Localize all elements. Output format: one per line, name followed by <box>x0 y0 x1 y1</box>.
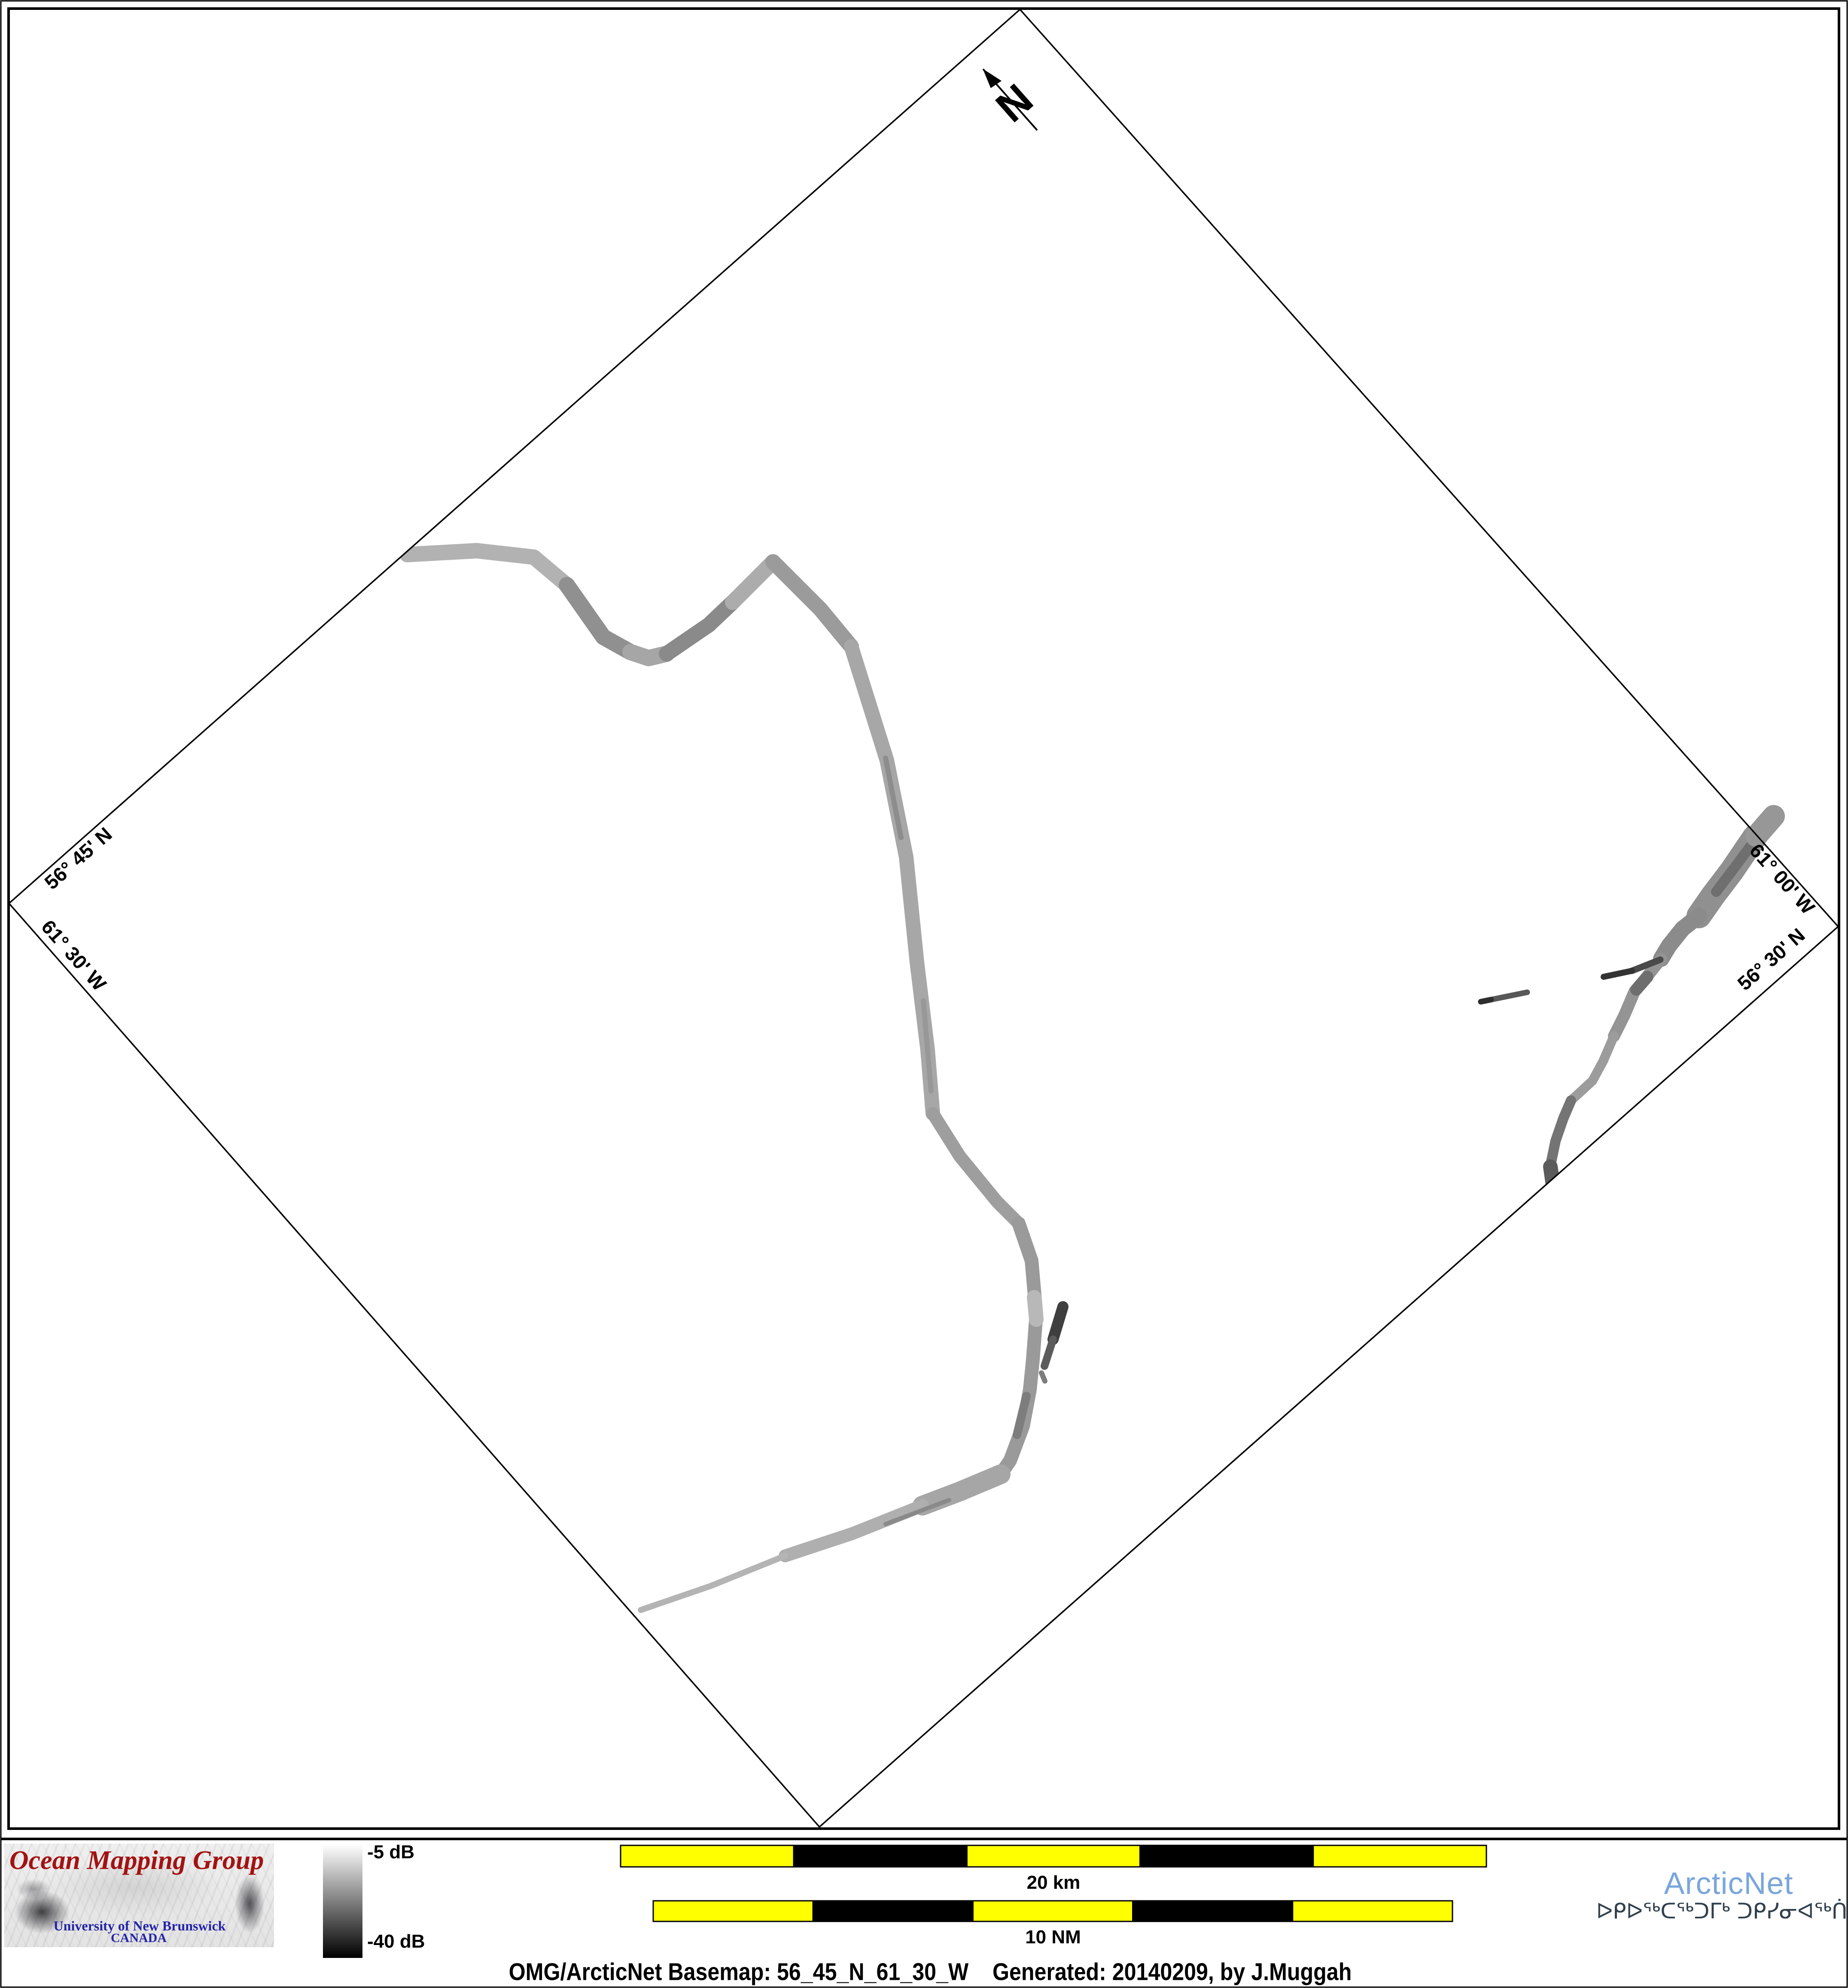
scale-segment <box>1293 1901 1452 1921</box>
scale-segment <box>973 1901 1133 1921</box>
scale-segment <box>1140 1845 1313 1867</box>
scale-km-label: 20 km <box>1027 1873 1081 1892</box>
scale-bar-nm <box>653 1901 1452 1921</box>
scale-bar-km <box>621 1845 1486 1867</box>
arcticnet-logo-name: ArcticNet <box>1664 1868 1793 1899</box>
scale-segment <box>1133 1901 1293 1921</box>
scale-segment <box>1313 1845 1486 1867</box>
colorbar-bottom-label: -40 dB <box>367 1932 425 1951</box>
east-survey-track <box>1481 817 1773 1192</box>
scale-segment <box>813 1901 973 1921</box>
colorbar-top-label: -5 dB <box>367 1843 414 1862</box>
west-track-dark-spur <box>1053 1307 1063 1339</box>
map-boundary-diamond <box>9 9 1838 1827</box>
basemap-caption: OMG/ArcticNet Basemap: 56_45_N_61_30_W G… <box>509 1960 1352 1985</box>
scale-nm-label: 10 NM <box>1025 1928 1081 1947</box>
map-canvas <box>0 0 1848 1988</box>
basemap-page: N 56° 45' N 61° 30' W 61° 00' W 56° 30' … <box>0 0 1848 1988</box>
arcticnet-inuktitut-text: ᐅᑭᐅᖅᑕᖅᑐᒥᒃ ᑐᑭᓯᓂᐊᖅᑏᑦ <box>1596 1900 1848 1922</box>
map-frame <box>9 9 1839 1829</box>
east-track-edge-overflow <box>1757 816 1774 836</box>
backscatter-colorbar <box>323 1845 362 1958</box>
scale-segment <box>621 1845 794 1867</box>
omg-logo-country: CANADA <box>111 1932 167 1945</box>
scale-segment <box>653 1901 813 1921</box>
west-survey-track <box>407 551 1063 1610</box>
scale-segment <box>967 1845 1140 1867</box>
omg-logo-title: Ocean Mapping Group <box>9 1847 264 1874</box>
sonar-tracks <box>407 551 1773 1610</box>
scale-segment <box>794 1845 967 1867</box>
